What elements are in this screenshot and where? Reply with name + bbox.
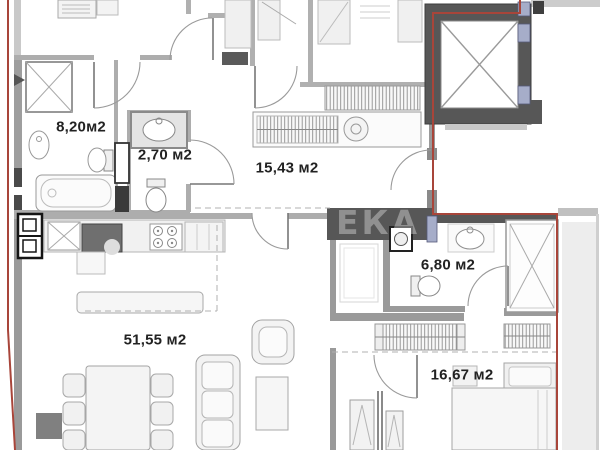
- wardrobe-right: [504, 324, 550, 348]
- kitchen-counter: [44, 220, 225, 313]
- room-label-bedroom: 16,67 м2: [431, 367, 494, 384]
- bedroom-furniture: [350, 324, 556, 450]
- sink: [448, 224, 494, 252]
- duct-panel-dark: [115, 186, 129, 212]
- room-label-living-kitchen: 51,55 м2: [124, 332, 187, 349]
- room-label-bathroom-main: 8,20м2: [56, 119, 106, 136]
- watermark: ЕКА: [336, 206, 420, 239]
- floor-plan: ЕКА 8,20м2 2,70 м2 15,43 м2 51,55 м2 6,8…: [0, 0, 600, 450]
- closet-strip: [340, 244, 378, 302]
- dining-table: [63, 366, 173, 450]
- toilet: [146, 179, 166, 212]
- sliding-partition: [350, 391, 403, 450]
- sofa: [196, 355, 240, 450]
- toilet: [88, 148, 113, 172]
- duct-panel: [115, 143, 129, 183]
- upper-rooms-furniture: [58, 0, 422, 65]
- room-label-wc: 2,70 м2: [138, 147, 192, 164]
- kitchen-island: [77, 292, 203, 313]
- shower-box: [26, 62, 72, 112]
- floorplan-drawing: [0, 0, 600, 450]
- sink: [29, 131, 49, 159]
- appliance: [82, 224, 122, 255]
- coffee-table: [256, 377, 288, 430]
- mirror-wardrobe: [506, 220, 558, 312]
- door-mat: [222, 52, 248, 65]
- coat-rack: [325, 86, 420, 110]
- hallway-storage: [253, 86, 421, 147]
- room-label-bathroom-second: 6,80 м2: [421, 257, 475, 274]
- elevator-shaft: [425, 1, 544, 242]
- room-label-hallway: 15,43 м2: [256, 160, 319, 177]
- hall-wardrobe: [253, 112, 421, 147]
- duct-shaft: [18, 214, 42, 258]
- armchair: [252, 320, 294, 364]
- dishwasher: [77, 252, 105, 274]
- wardrobe-left: [375, 324, 465, 350]
- bathtub: [36, 175, 116, 211]
- vanity-sink: [131, 112, 187, 148]
- toilet: [411, 276, 440, 296]
- kitchen-sink: [48, 222, 80, 250]
- stove: [150, 224, 182, 250]
